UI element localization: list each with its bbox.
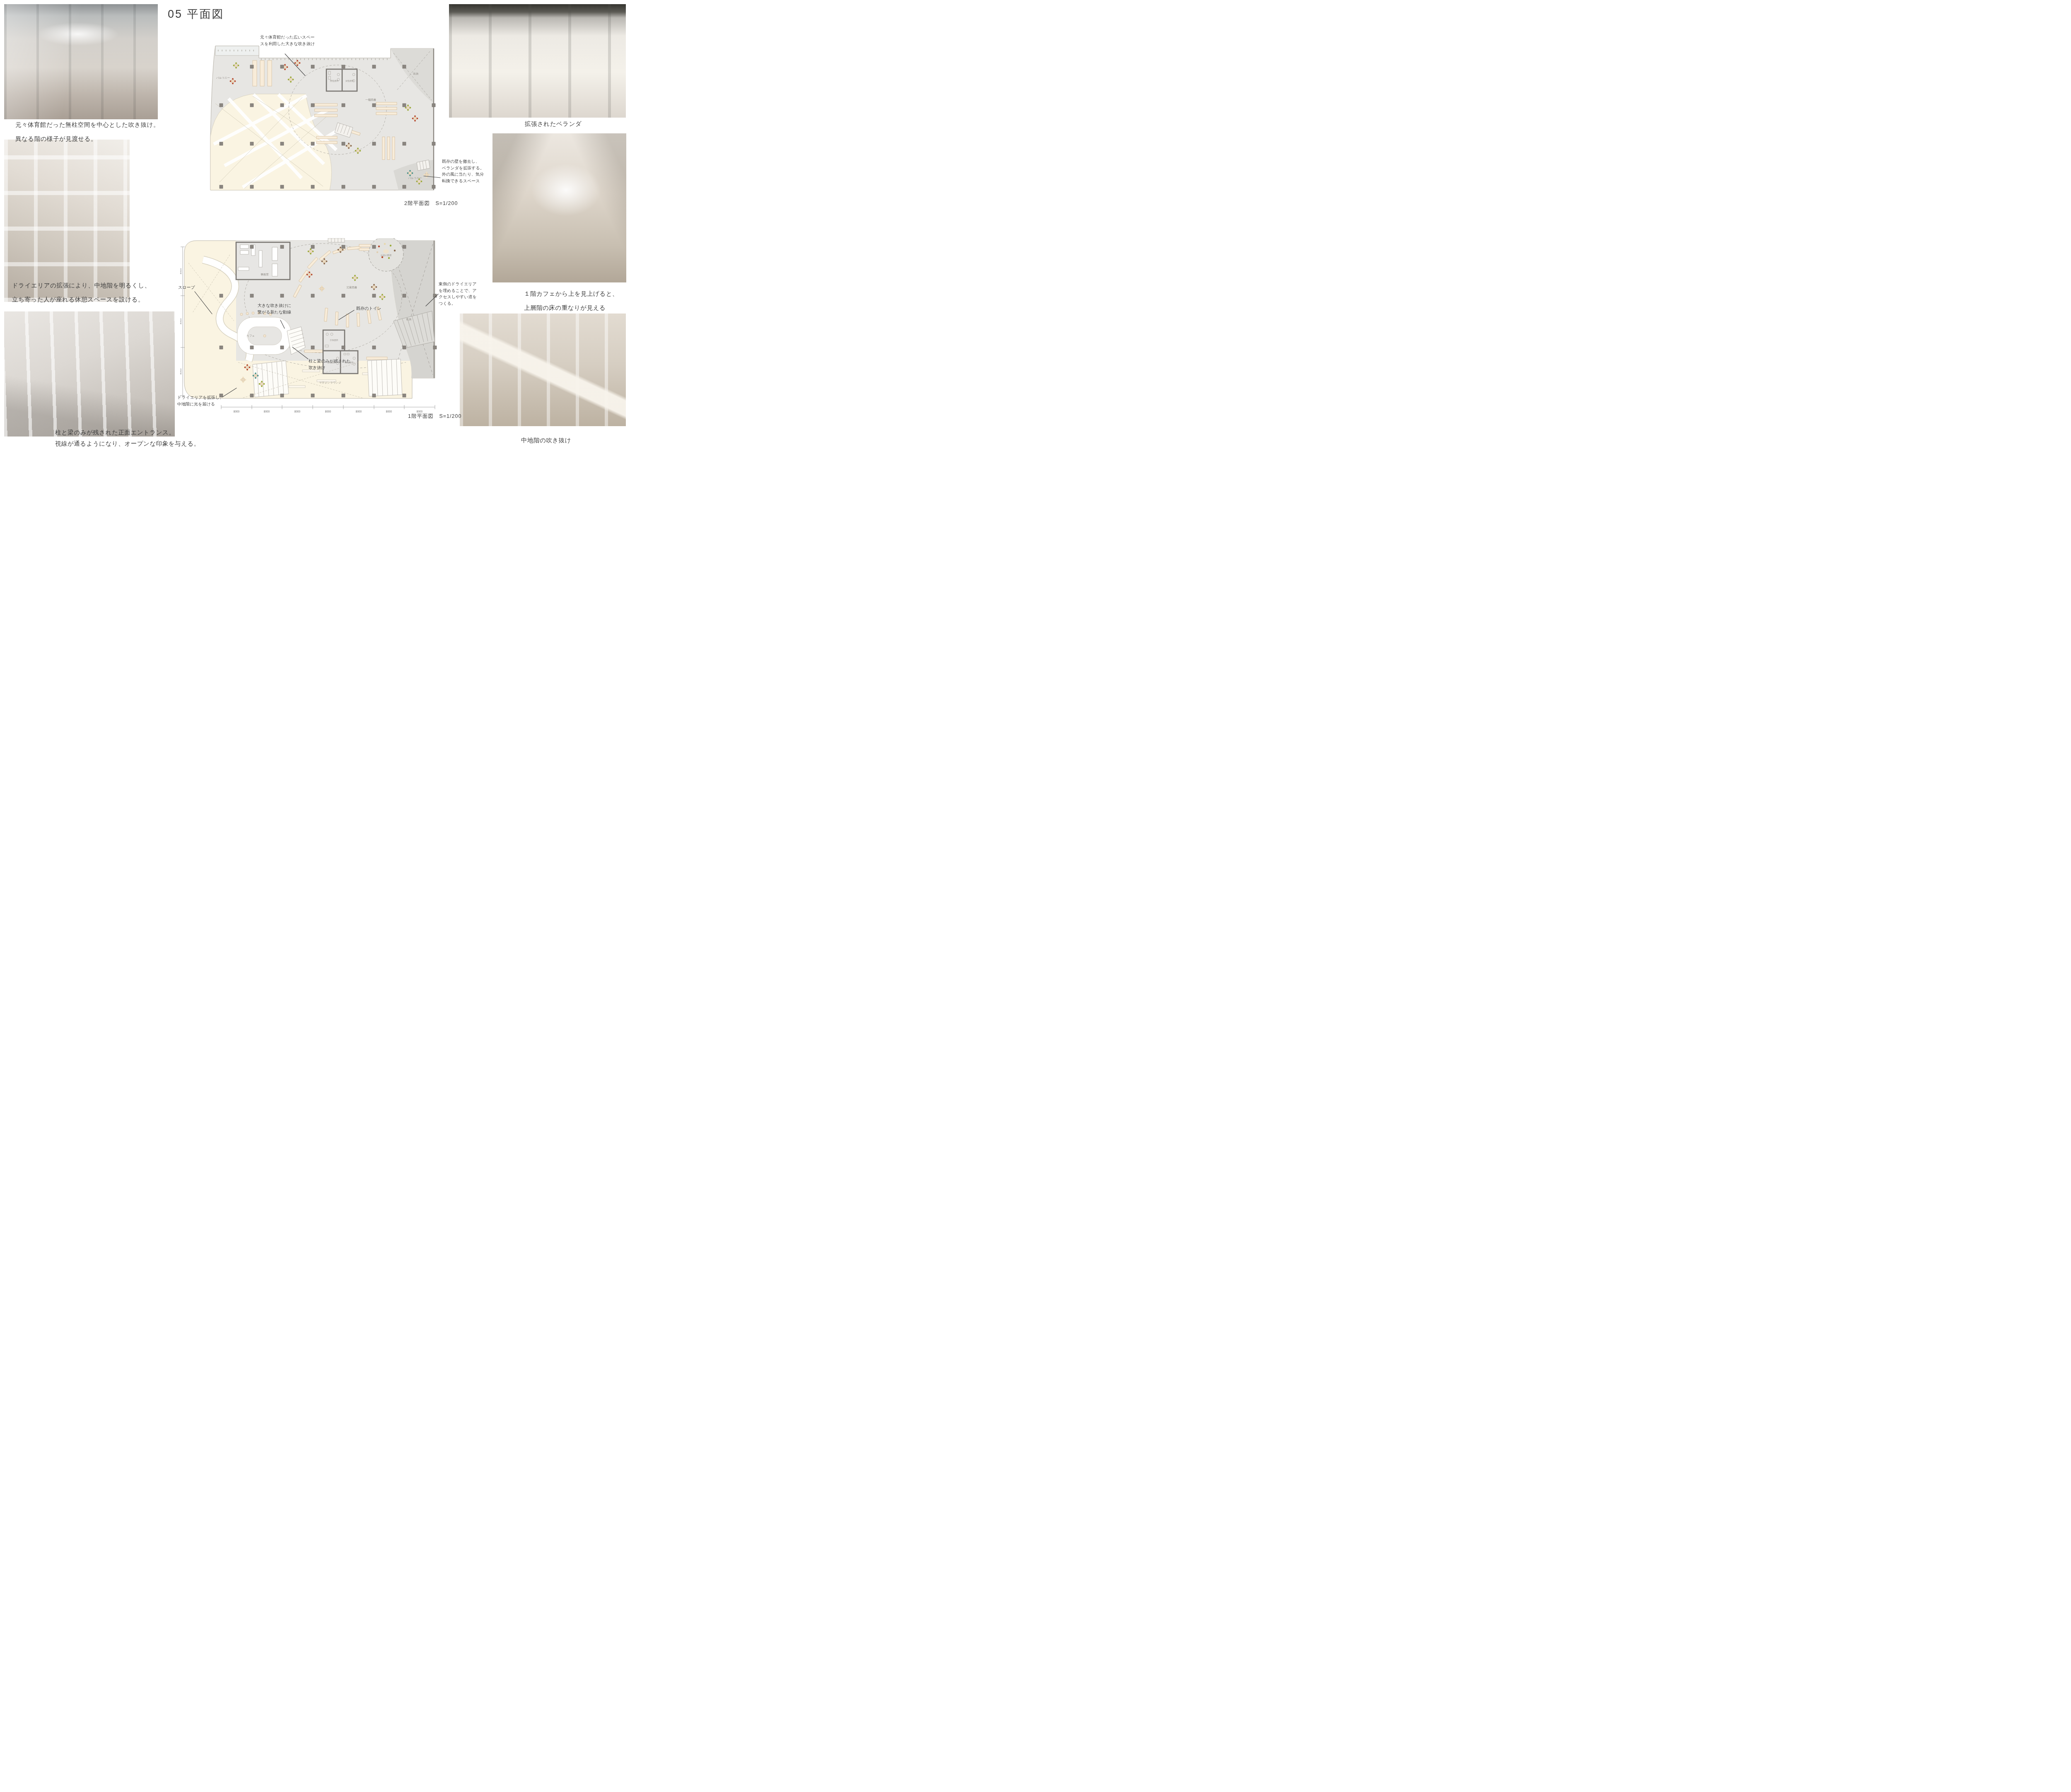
dim-bottom-6: 8000	[386, 410, 392, 413]
annotation-void-1f-line2: 吹き抜け	[309, 364, 351, 371]
dim-bottom-2: 8000	[264, 410, 270, 413]
annotation-2f-veranda-line3: 外の風に当たり、気分	[442, 171, 484, 178]
photo4-caption: 拡張されたベランダ	[525, 120, 582, 128]
room-label-kids-toilet: 子供便所	[330, 339, 338, 342]
room-label-story-room: お話の部屋	[381, 254, 392, 257]
room-label-cafe: カフェ	[246, 334, 255, 337]
photo3-caption-line2: 視線が通るようになり、オープンな印象を与える。	[55, 440, 200, 448]
dim-bottom-5: 8000	[356, 410, 362, 413]
annotation-2f-void: 元々体育館だった広いスペー スを利用した大きな吹き抜け	[260, 34, 315, 47]
annotation-slope: スロープ	[178, 284, 195, 291]
photo1-caption-line1: 元々体育館だった無柱空間を中心とした吹き抜け。	[15, 121, 159, 129]
floor-plan-2f: バルコニー 男性便所 女性便所 一般図書 吹抜 バルコニー	[203, 41, 439, 203]
plan1f-title: 1階平面図 S=1/200	[408, 413, 461, 420]
entrance-stair-left	[253, 361, 289, 397]
dim-left-1: 9000	[180, 268, 182, 274]
model-photo-dryarea	[4, 140, 130, 302]
room-label-children-books: 児童図書	[346, 286, 357, 289]
dim-bottom-4: 8000	[325, 410, 331, 413]
model-photo-atrium	[4, 4, 158, 119]
plan2f-title: 2階平面図 S=1/200	[404, 200, 458, 207]
page-title: 05 平面図	[168, 7, 224, 22]
top-stair-hatch	[328, 238, 345, 242]
dim-left-2: 9000	[180, 318, 182, 324]
dim-bottom-7: 8000	[417, 410, 423, 413]
annotation-flow-line1: 大きな吹き抜けに	[258, 302, 291, 309]
photo6-caption: 中地階の吹き抜け	[521, 437, 571, 444]
annotation-flow-line2: 繋がる新たな動線	[258, 309, 291, 316]
room-label-office: 事務室	[261, 273, 269, 276]
model-photo-entrance	[4, 311, 175, 437]
annotation-existing-toilet: 既存のトイレ	[356, 305, 381, 312]
annotation-east-dryarea: 東側のドライエリア を埋めることで、ア クセスしやすい道を つくる。	[439, 281, 477, 306]
photo2-caption-line1: ドライエリアの拡張により、中地階を明るくし、	[12, 282, 151, 289]
room-label-magazine-lounge: マガジンラウンジ	[319, 381, 341, 384]
annotation-void-1f-line1: 柱と梁のみが残された	[309, 358, 351, 364]
presentation-board: 05 平面図 元々体育館だった無柱空間を中心とした吹き抜け。 異なる階の様子が見…	[0, 0, 635, 448]
annotation-flow: 大きな吹き抜けに 繋がる新たな動線	[258, 302, 291, 315]
room-label-void-1f: 吹抜	[406, 318, 412, 321]
room-label-void-2f: 吹抜	[413, 72, 419, 75]
annotation-east-line3: クセスしやすい道を	[439, 294, 477, 300]
annotation-east-line1: 東側のドライエリア	[439, 281, 477, 287]
annotation-2f-veranda-line2: ベランダを拡張する。	[442, 165, 484, 171]
dim-chain-bottom	[221, 405, 435, 409]
room-label-general-books: 一般図書	[365, 98, 377, 101]
study-carrels	[253, 60, 272, 86]
dim-bottom-1: 8000	[234, 410, 240, 413]
photo2-caption-line2: 立ち寄った人が座れる休憩スペースを設ける。	[12, 296, 144, 304]
annotation-east-line4: つくる。	[439, 300, 477, 307]
model-photo-veranda	[449, 4, 626, 118]
annotation-east-line2: を埋めることで、ア	[439, 287, 477, 294]
annotation-2f-veranda-line4: 転換できるスペース	[442, 178, 484, 184]
annotation-dry-line2: 中地階に光を届ける	[177, 401, 224, 408]
photo1-caption-line2: 異なる階の様子が見渡せる。	[15, 135, 97, 143]
annotation-dry-line1: ドライエリアを拡張し、	[177, 394, 224, 401]
annotation-dry-expand: ドライエリアを拡張し、 中地階に光を届ける	[177, 394, 224, 407]
annotation-2f-veranda: 既存の壁を撤去し、 ベランダを拡張する。 外の風に当たり、気分 転換できるスペー…	[442, 158, 484, 184]
model-photo-basement-void	[460, 314, 626, 426]
annotation-2f-void-line2: スを利用した大きな吹き抜け	[260, 41, 315, 47]
annotation-void-1f: 柱と梁のみが残された 吹き抜け	[309, 358, 351, 371]
room-label-balcony-bottom: バルコニー	[408, 176, 422, 179]
dim-left-3: 8000	[180, 368, 182, 374]
model-photo-cafe-lookup	[492, 133, 626, 282]
photo3-caption-line1: 柱と梁のみが残された正面エントランス。	[55, 429, 175, 437]
annotation-2f-veranda-line1: 既存の壁を撤去し、	[442, 158, 484, 165]
room-label-womens-2f: 女性便所	[345, 80, 354, 82]
photo5-caption-line2: 上層階の床の重なりが見える	[524, 304, 606, 312]
photo5-caption-line1: １階カフェから上を見上げると、	[524, 290, 618, 298]
dim-bottom-3: 8000	[294, 410, 301, 413]
entrance-stair-right	[367, 359, 402, 396]
annotation-2f-void-line1: 元々体育館だった広いスペー	[260, 34, 315, 41]
room-label-mens-2f: 男性便所	[330, 80, 339, 82]
room-label-balcony-top: バルコニー	[216, 76, 230, 79]
